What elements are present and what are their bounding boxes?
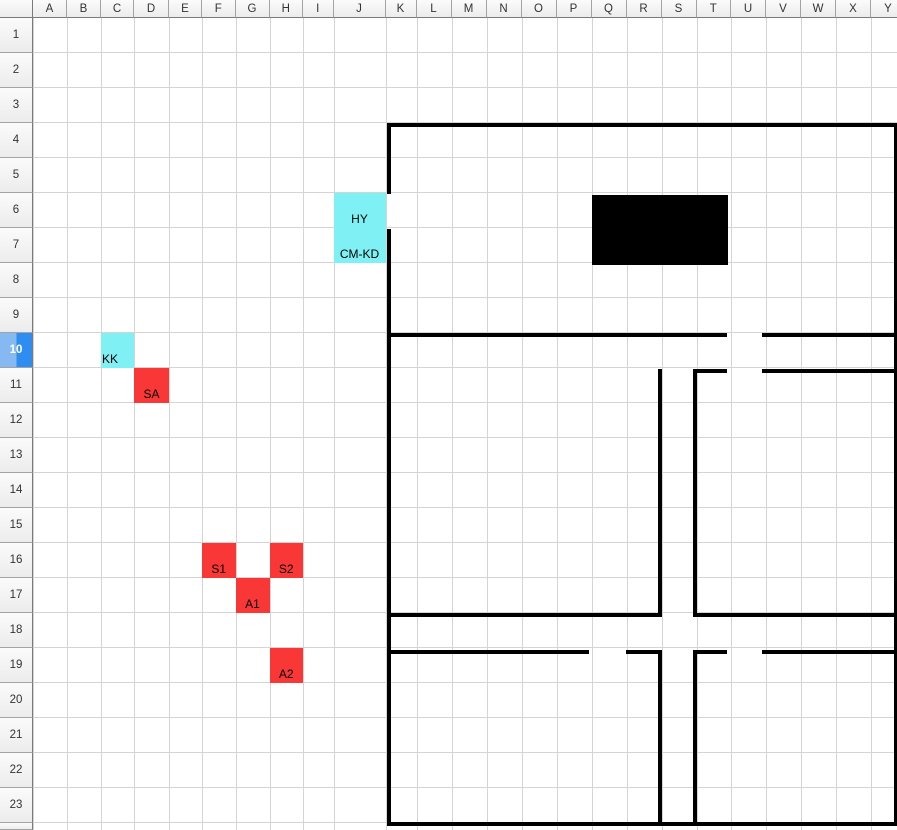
gridline-horizontal [33,262,897,263]
gridline-vertical [33,18,34,830]
gridline-vertical [801,18,802,830]
row-header-17[interactable]: 17 [0,578,33,613]
cell-H19[interactable]: A2 [270,648,304,683]
cell-F16[interactable]: S1 [202,543,236,578]
column-header-O[interactable]: O [522,0,557,18]
gridline-vertical [303,18,304,830]
column-header-X[interactable]: X [836,0,871,18]
row-header-23[interactable]: 23 [0,788,33,823]
gridline-vertical [487,18,488,830]
gridline-horizontal [33,682,897,683]
spreadsheet: HYCM-KDKKSAS1S2A1A2ABCDEFGHIJKLMNOPQRSTU… [0,0,897,830]
column-header-J[interactable]: J [334,0,386,18]
column-header-E[interactable]: E [169,0,202,18]
gridline-vertical [836,18,837,830]
wall-horizontal[interactable] [387,333,727,337]
gridline-vertical [592,18,593,830]
gridline-horizontal [33,437,897,438]
row-header-partial[interactable] [0,823,33,830]
row-header-15[interactable]: 15 [0,508,33,543]
column-header-D[interactable]: D [134,0,169,18]
gridline-vertical [134,18,135,830]
gridline-horizontal [33,227,897,228]
row-header-5[interactable]: 5 [0,158,33,193]
cell-D11[interactable]: SA [134,368,169,403]
wall-horizontal[interactable] [693,650,728,654]
row-header-4[interactable]: 4 [0,123,33,158]
gridline-horizontal [33,787,897,788]
gridline-horizontal [33,717,897,718]
gridline-horizontal [33,52,897,53]
gridline-vertical [67,18,68,830]
gridline-horizontal [33,647,897,648]
wall-horizontal[interactable] [626,650,663,654]
row-header-10[interactable]: 10 [0,333,33,368]
solid-black-rectangle[interactable] [592,195,728,265]
row-header-13[interactable]: 13 [0,438,33,473]
row-header-18[interactable]: 18 [0,613,33,648]
row-header-8[interactable]: 8 [0,263,33,298]
select-all-corner[interactable] [0,0,33,18]
row-header-20[interactable]: 20 [0,683,33,718]
column-header-W[interactable]: W [801,0,836,18]
column-header-H[interactable]: H [270,0,304,18]
gridline-horizontal [33,87,897,88]
gridline-vertical [766,18,767,830]
row-header-1[interactable]: 1 [0,18,33,53]
column-header-G[interactable]: G [236,0,270,18]
gridline-vertical [697,18,698,830]
row-header-6[interactable]: 6 [0,193,33,228]
cell-J7[interactable]: CM-KD [334,228,386,263]
row-header-21[interactable]: 21 [0,718,33,753]
row-header-16[interactable]: 16 [0,543,33,578]
wall-vertical[interactable] [658,650,662,826]
row-header-11[interactable]: 11 [0,368,33,403]
row-header-12[interactable]: 12 [0,403,33,438]
gridline-horizontal [33,577,897,578]
gridline-vertical [101,18,102,830]
column-header-B[interactable]: B [67,0,101,18]
gridline-vertical [236,18,237,830]
gridline-vertical [557,18,558,830]
wall-vertical[interactable] [658,369,662,617]
gridline-horizontal [33,157,897,158]
wall-vertical[interactable] [387,123,391,194]
gridline-vertical [169,18,170,830]
gridline-vertical [871,18,872,830]
row-header-22[interactable]: 22 [0,753,33,788]
gridline-horizontal [33,297,897,298]
column-header-U[interactable]: U [731,0,766,18]
wall-horizontal[interactable] [693,613,897,617]
column-header-I[interactable]: I [303,0,334,18]
column-header-A[interactable]: A [33,0,67,18]
column-header-L[interactable]: L [417,0,452,18]
gridline-vertical [627,18,628,830]
row-header-9[interactable]: 9 [0,298,33,333]
column-header-S[interactable]: S [662,0,697,18]
wall-horizontal[interactable] [762,333,897,337]
wall-horizontal[interactable] [387,123,897,127]
gridline-vertical [417,18,418,830]
row-header-2[interactable]: 2 [0,53,33,88]
gridline-horizontal [33,507,897,508]
gridline-horizontal [33,192,897,193]
column-header-C[interactable]: C [101,0,134,18]
column-header-M[interactable]: M [452,0,487,18]
row-header-14[interactable]: 14 [0,473,33,508]
gridline-vertical [731,18,732,830]
wall-horizontal[interactable] [693,369,728,373]
wall-horizontal[interactable] [387,822,897,826]
gridline-vertical [270,18,271,830]
column-header-P[interactable]: P [557,0,592,18]
column-header-T[interactable]: T [697,0,732,18]
row-header-19[interactable]: 19 [0,648,33,683]
gridline-vertical [334,18,335,830]
gridline-horizontal [33,752,897,753]
column-header-R[interactable]: R [627,0,662,18]
wall-vertical[interactable] [693,650,697,826]
column-header-Q[interactable]: Q [592,0,627,18]
wall-horizontal[interactable] [387,650,589,654]
gridline-vertical [202,18,203,830]
wall-horizontal[interactable] [762,369,897,373]
gridline-horizontal [33,542,897,543]
wall-vertical[interactable] [693,369,697,617]
row-header-3[interactable]: 3 [0,88,33,123]
gridline-vertical [522,18,523,830]
column-header-F[interactable]: F [202,0,236,18]
gridline-horizontal [33,472,897,473]
cell-G17[interactable]: A1 [236,578,270,613]
column-header-V[interactable]: V [766,0,801,18]
gridline-vertical [452,18,453,830]
cell-J6[interactable]: HY [334,193,386,228]
column-header-K[interactable]: K [386,0,417,18]
wall-horizontal[interactable] [387,613,662,617]
column-header-N[interactable]: N [487,0,522,18]
row-header-7[interactable]: 7 [0,228,33,263]
cell-H16[interactable]: S2 [270,543,304,578]
wall-vertical[interactable] [387,229,391,826]
cell-C10[interactable]: KK [101,333,134,368]
wall-horizontal[interactable] [762,650,897,654]
column-header-Y[interactable]: Y [871,0,897,18]
wall-vertical[interactable] [894,123,897,826]
